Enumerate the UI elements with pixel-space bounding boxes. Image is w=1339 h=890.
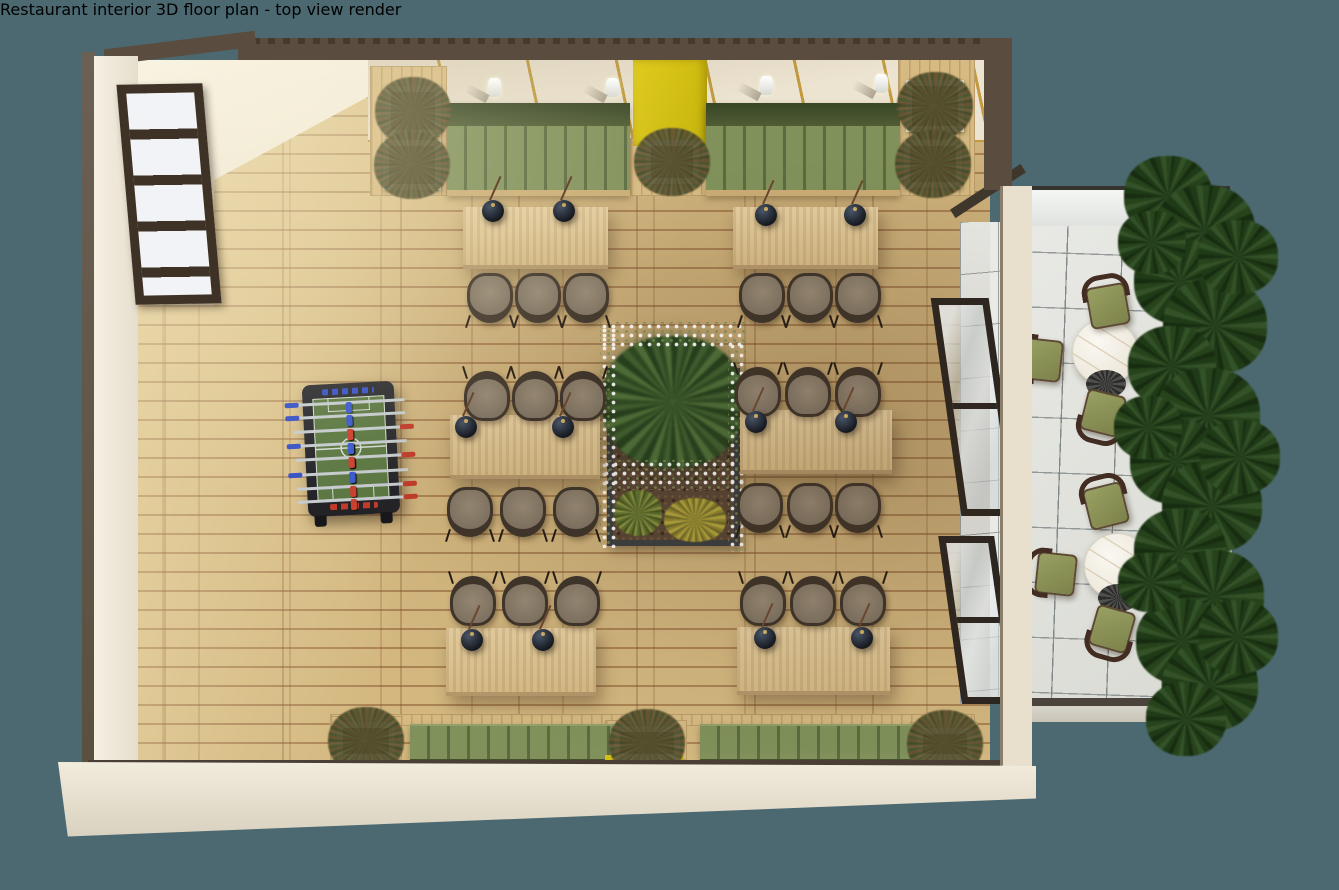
dining-chair (563, 273, 609, 323)
top-right-wall (984, 38, 1012, 190)
shrub-plant (895, 130, 971, 198)
top-exterior-wall (238, 38, 995, 60)
patio-chair (1034, 551, 1078, 597)
pendant-lamp (552, 416, 574, 438)
planter-box (904, 140, 962, 188)
green-tuft-plant (614, 490, 662, 536)
hedge-blob (1198, 600, 1278, 674)
dining-chair (735, 367, 781, 417)
planter-box (383, 140, 441, 190)
scene-title: Restaurant interior 3D floor plan - top … (0, 0, 401, 19)
pendant-lamp (754, 627, 776, 649)
hedge-plants (1120, 170, 1339, 750)
wall-sconce-light (875, 74, 888, 93)
yellow-tuft-plant (664, 498, 726, 542)
dining-chair (515, 273, 561, 323)
wall-sconce-light (606, 78, 619, 97)
dining-chair (787, 483, 833, 533)
hedge-blob (1146, 682, 1226, 756)
pendant-lamp (835, 411, 857, 433)
wall-sconce-light (488, 78, 501, 97)
dining-chair (737, 483, 783, 533)
dining-chair (447, 487, 493, 537)
fern-plant (602, 336, 744, 468)
floor-plan-scene: Restaurant interior 3D floor plan - top … (0, 0, 1339, 890)
shrub-plant (374, 131, 450, 199)
planter-box (917, 728, 973, 760)
pendant-lamp (851, 627, 873, 649)
hedge-blob (1114, 396, 1182, 459)
banquette-bench (700, 724, 915, 762)
planter-box (337, 722, 395, 760)
dining-chair (740, 576, 786, 626)
flower-garland-left (600, 326, 616, 548)
pendant-lamp (482, 200, 504, 222)
dining-chair (790, 576, 836, 626)
flower-garland-top (600, 322, 746, 348)
pendant-lamp (532, 629, 554, 651)
dining-chair (502, 576, 548, 626)
dining-chair (787, 273, 833, 323)
dining-chair (739, 273, 785, 323)
planter-box (385, 86, 441, 136)
hedge-blob (1198, 220, 1278, 294)
pendant-lamp (461, 629, 483, 651)
planter-box (645, 140, 699, 184)
dining-chair (554, 576, 600, 626)
dining-chair (512, 371, 558, 421)
dining-chair (553, 487, 599, 537)
dining-chair (500, 487, 546, 537)
pendant-lamp (455, 416, 477, 438)
flower-garland-middle (602, 460, 744, 490)
bottom-wall-face (58, 762, 1036, 838)
foosball-table (302, 381, 401, 518)
hedge-blob (1118, 211, 1186, 274)
pendant-lamp (755, 204, 777, 226)
dining-chair (835, 483, 881, 533)
dining-chair (785, 367, 831, 417)
banquette-bench (410, 724, 632, 762)
planter-box (614, 726, 680, 760)
right-wall-face (1000, 186, 1032, 766)
planter-box (906, 80, 964, 132)
wall-sconce-light (760, 76, 773, 95)
dining-chair (835, 273, 881, 323)
pendant-lamp (844, 204, 866, 226)
shrub-plant (634, 128, 710, 196)
pendant-lamp (745, 411, 767, 433)
dining-chair (467, 273, 513, 323)
central-garden-planter (600, 322, 746, 554)
banquette-bench (706, 103, 900, 196)
hedge-blob (1118, 553, 1182, 612)
hedge-blob (1200, 420, 1280, 494)
foosball-feet (314, 515, 327, 527)
pendant-lamp (553, 200, 575, 222)
banquette-bench (447, 103, 630, 196)
